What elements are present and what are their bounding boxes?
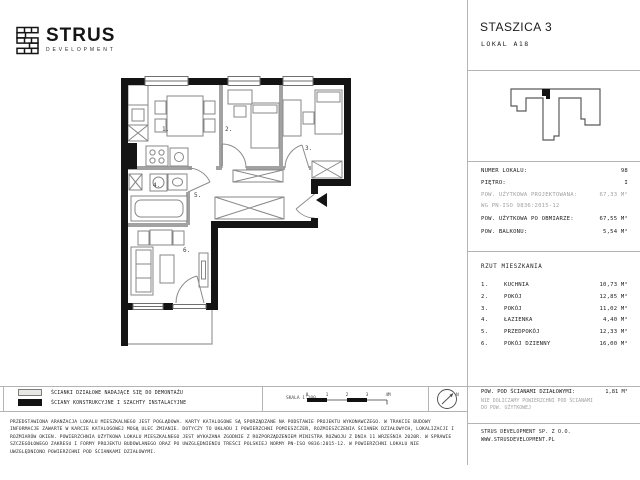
partition-area-label: POW. POD ŚCIANAMI DZIAŁOWYMI: (481, 389, 575, 395)
legend-scale-divider (262, 386, 263, 411)
disclaimer-text: PRZEDSTAWIONA ARANŻACJA LOKALU MIESZKALN… (10, 419, 462, 456)
project-title: STASZICA 3 (480, 20, 552, 34)
scale-tick-4: 4M (385, 392, 391, 397)
sidebar-divider (467, 251, 640, 252)
kitchen-furniture (128, 85, 215, 166)
room-label-1: 1. (162, 126, 169, 133)
scale-tick-3: 3 (366, 392, 369, 397)
north-compass-icon: N (432, 388, 464, 410)
scale-compass-divider (428, 386, 429, 411)
sidebar-divider (467, 70, 640, 71)
company-website[interactable]: WWW.STRUSDEVELOPMENT.PL (481, 436, 571, 444)
company-name: STRUS DEVELOPMENT SP. Z O.O. (481, 428, 571, 436)
legend-label: ŚCIANKI DZIAŁOWE NADAJĄCE SIĘ DO DEMONTA… (51, 390, 183, 396)
scale-tick-2: 2 (346, 392, 349, 397)
scale-bar: 0 1 2 3 4M (302, 391, 397, 407)
partition-wall-swatch (18, 389, 42, 396)
legend-item-partition: ŚCIANKI DZIAŁOWE NADAJĄCE SIĘ DO DEMONTA… (18, 389, 183, 396)
floor-plan: 1. 2. 3. 4. 5. 6. (0, 0, 467, 400)
legend-item-structural: ŚCIANY KONSTRUKCYJNE I SZACHTY INSTALACY… (18, 399, 186, 406)
room-list-heading: RZUT MIESZKANIA (481, 264, 542, 270)
north-letter: N (456, 392, 459, 398)
legend-box-left-border (3, 386, 4, 411)
sidebar: STASZICA 3 LOKAL A18 NUMER LOKALU: 98 PI… (467, 0, 640, 480)
bedroom3-furniture (283, 90, 342, 178)
disclaimer-line: PRZEDSTAWIONA ARANŻACJA LOKALU MIESZKALN… (10, 419, 462, 426)
disclaimer-line: SZCZEGÓŁOWEGO ZAKRESU I FORMY PROJEKTU B… (10, 441, 462, 448)
structural-wall-swatch (18, 399, 42, 406)
disclaimer-line: ROZMIARÓW OKIEN. POWIERZCHNIA UŻYTKOWA L… (10, 434, 462, 441)
room-label-2: 2. (225, 126, 232, 133)
sidebar-divider (467, 161, 640, 162)
legend-label: ŚCIANY KONSTRUKCYJNE I SZACHTY INSTALACY… (51, 400, 186, 406)
room-label-4: 4. (153, 182, 160, 189)
scale-tick-0: 0 (306, 392, 309, 397)
disclaimer-line: INFORMACJE ZAWARTE W KARCIE KATALOGOWEJ … (10, 426, 462, 433)
hallway-wardrobes (215, 170, 284, 219)
catalog-card-page: STRUS DEVELOPMENT (0, 0, 640, 480)
unit-number: LOKAL A18 (481, 40, 530, 48)
scale-tick-1: 1 (326, 392, 329, 397)
balcony-outline (128, 310, 212, 344)
room-label-6: 6. (183, 247, 190, 254)
room-label-3: 3. (305, 145, 312, 152)
company-block: STRUS DEVELOPMENT SP. Z O.O. WWW.STRUSDE… (481, 428, 571, 444)
partition-area-value: 1,81 M² (605, 389, 628, 395)
room-label-5: 5. (194, 192, 201, 199)
disclaimer-line: UWZGLĘDNIONO POWIERZCHNI POD ŚCIANKAMI D… (10, 449, 462, 456)
footer-bottom-divider (0, 411, 467, 412)
livingroom-furniture (131, 230, 208, 295)
bedroom2-furniture (228, 90, 279, 148)
building-outline-diagram (485, 84, 620, 146)
entrance-arrow-icon (316, 193, 327, 207)
sidebar-divider (467, 423, 640, 424)
partition-area-note: NIE DOLICZAMY POWIERZCHNI POD ŚCIANAMI D… (481, 398, 593, 412)
unit-location-marker (542, 89, 550, 96)
